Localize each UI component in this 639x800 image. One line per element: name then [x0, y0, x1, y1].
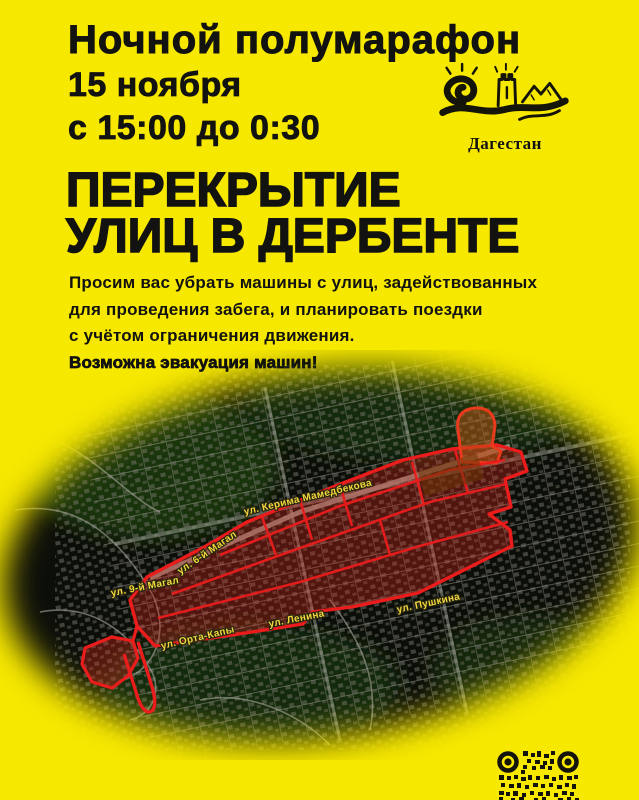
- headline-line1: ПЕРЕКРЫТИЕ: [66, 168, 519, 214]
- qr-code-icon: [497, 751, 579, 800]
- map-graphic: ул. Керима Мамедбекова ул. 6-й Магал ул.…: [0, 350, 639, 760]
- event-datetime: 15 ноября с 15:00 до 0:30: [68, 64, 320, 150]
- headline-line2: УЛИЦ В ДЕРБЕНТЕ: [66, 214, 519, 260]
- event-date: 15 ноября: [68, 64, 320, 107]
- street-closure-map: ул. Керима Мамедбекова ул. 6-й Магал ул.…: [0, 350, 639, 760]
- dagestan-logo-icon: [430, 58, 576, 136]
- notice-line: для проведения забега, и планировать пое…: [69, 297, 537, 324]
- dagestan-logo: Дагестан: [430, 58, 580, 154]
- event-time: с 15:00 до 0:30: [68, 107, 320, 150]
- dagestan-logo-caption: Дагестан: [430, 134, 580, 154]
- headline: ПЕРЕКРЫТИЕ УЛИЦ В ДЕРБЕНТЕ: [66, 168, 519, 260]
- notice-line: с учётом ограничения движения.: [69, 323, 537, 350]
- event-poster: Ночной полумарафон 15 ноября с 15:00 до …: [0, 0, 639, 800]
- notice-line: Просим вас убрать машины с улиц, задейст…: [69, 270, 537, 297]
- poster-title: Ночной полумарафон: [68, 18, 521, 63]
- qr-code: [497, 751, 579, 800]
